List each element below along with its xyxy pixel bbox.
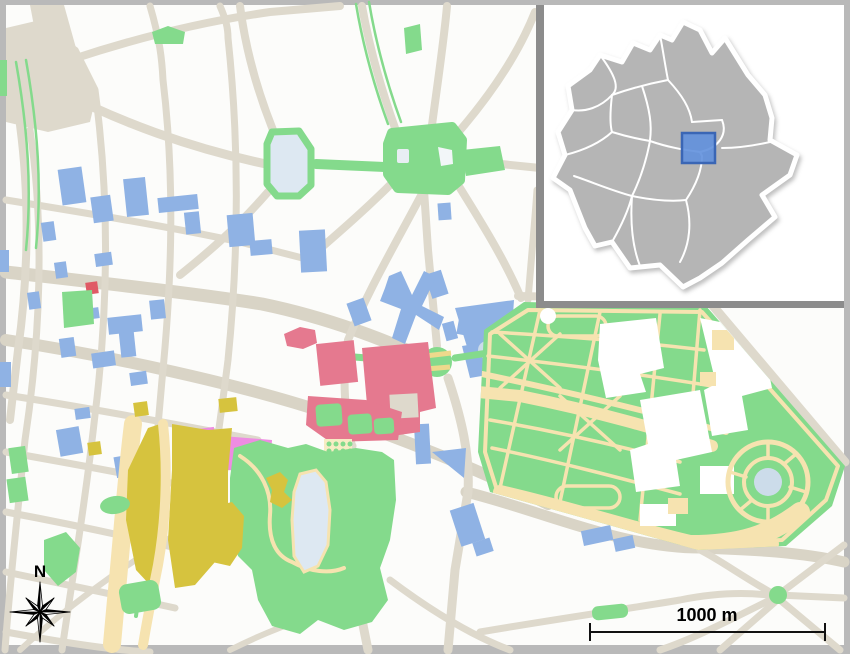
small-park-square xyxy=(62,290,94,328)
map-extent-highlight xyxy=(682,133,715,163)
scale-label: 1000 m xyxy=(676,605,737,625)
green-roundabout xyxy=(769,586,787,604)
small-pond xyxy=(540,308,556,324)
green-avenue xyxy=(316,164,385,167)
north-label: N xyxy=(34,562,46,581)
green-square xyxy=(388,127,462,190)
city-street-map: N 1000 m xyxy=(0,0,850,654)
map-screenshot: N 1000 m xyxy=(0,0,850,654)
pond-square xyxy=(267,131,311,196)
inset-map xyxy=(536,5,844,308)
